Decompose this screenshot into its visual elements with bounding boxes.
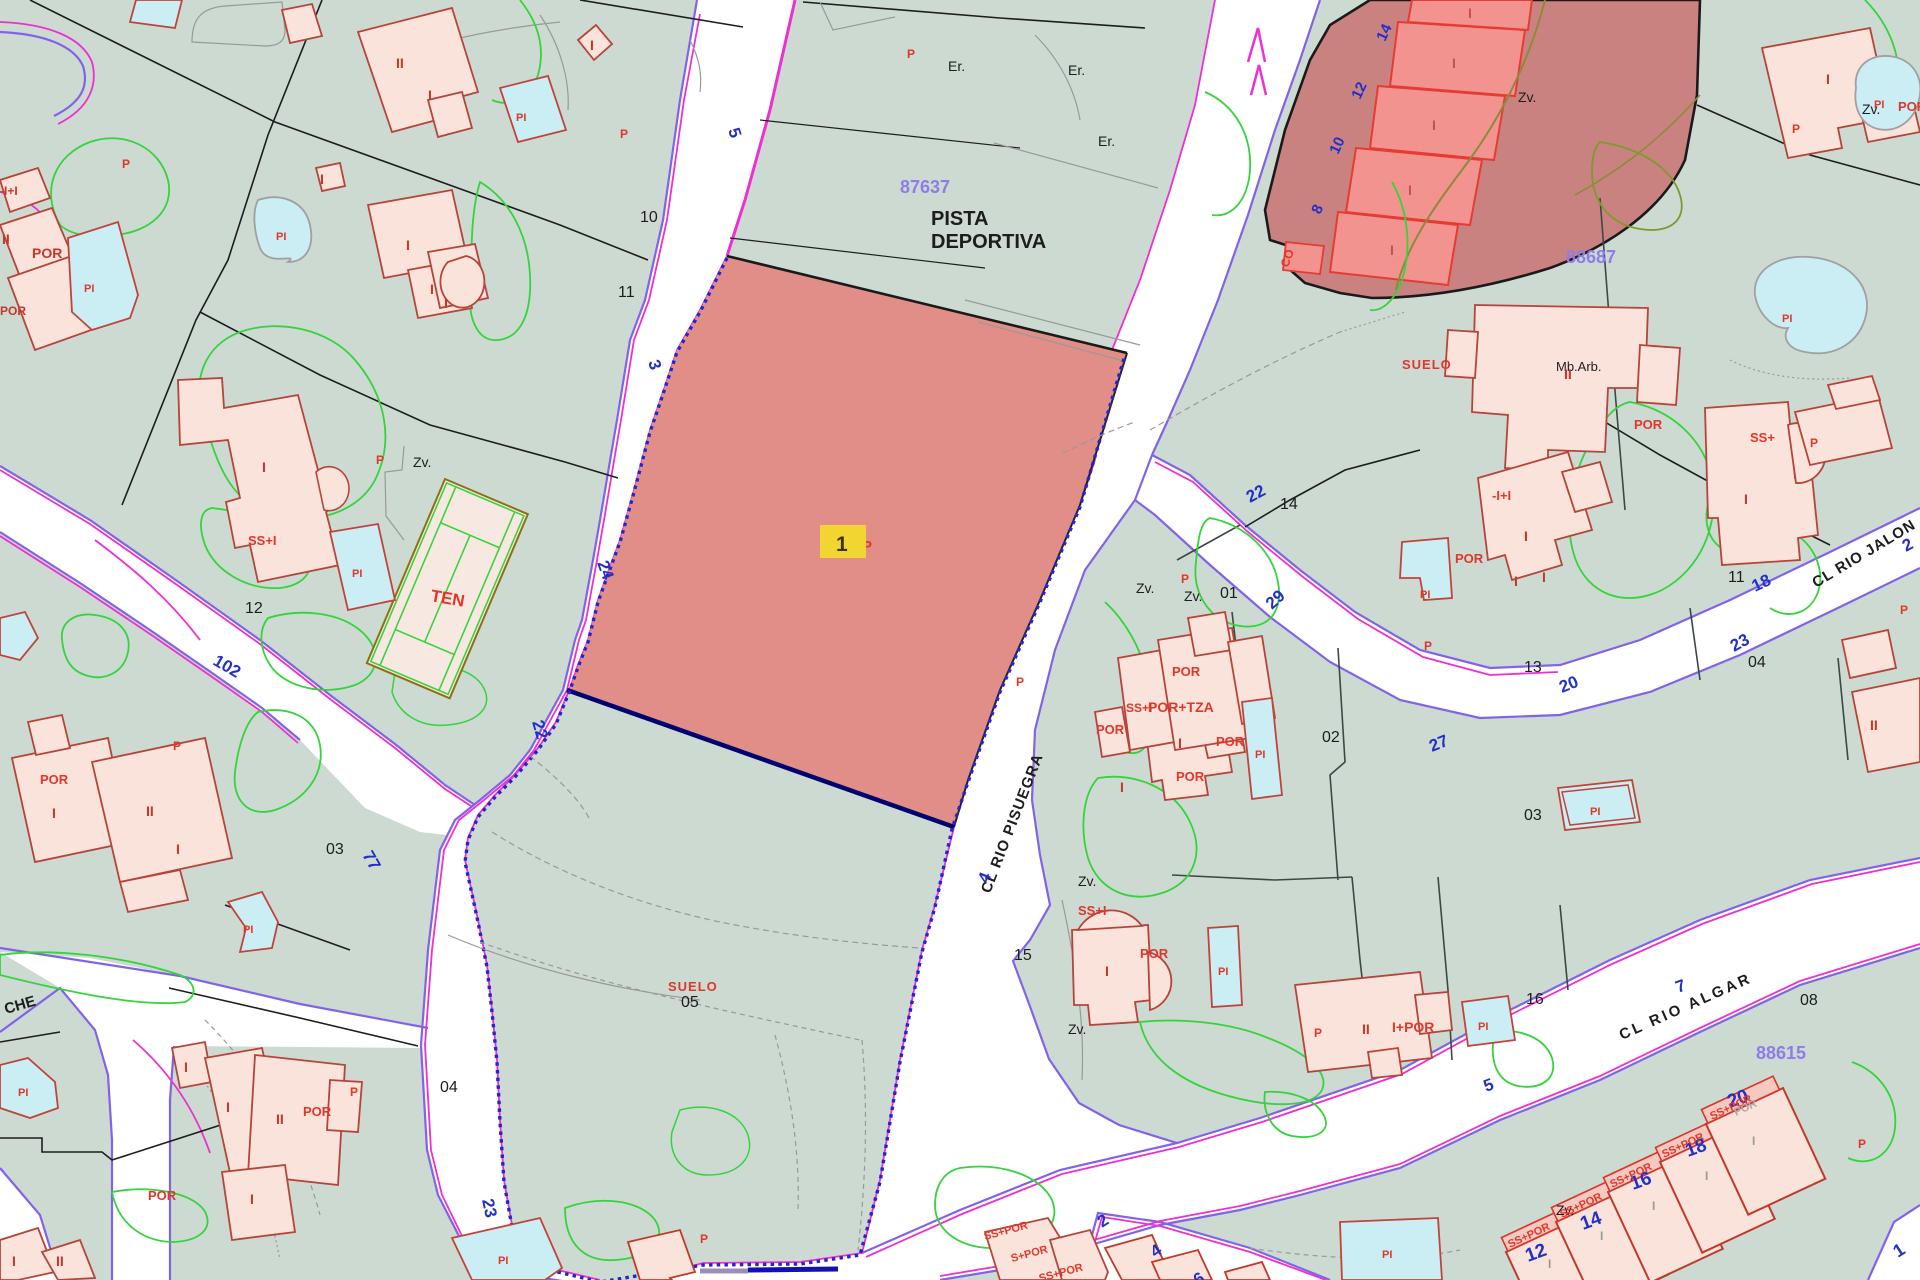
svg-text:Er.: Er. xyxy=(1098,133,1115,149)
svg-text:PI: PI xyxy=(352,568,362,580)
svg-text:01: 01 xyxy=(1220,585,1238,602)
svg-text:Zv.: Zv. xyxy=(1518,89,1536,105)
svg-text:POR: POR xyxy=(1140,946,1169,961)
svg-text:I: I xyxy=(1452,55,1456,71)
svg-text:I: I xyxy=(262,459,266,475)
svg-text:P: P xyxy=(1858,1137,1866,1151)
svg-text:Er.: Er. xyxy=(1068,62,1085,78)
svg-text:I: I xyxy=(1408,182,1412,198)
svg-text:I: I xyxy=(226,1099,230,1115)
svg-text:POR: POR xyxy=(1898,99,1920,114)
svg-text:I+POR: I+POR xyxy=(1392,1019,1434,1035)
svg-text:POR+TZA: POR+TZA xyxy=(1148,699,1214,715)
svg-text:I: I xyxy=(428,87,432,103)
svg-text:I: I xyxy=(1514,573,1518,589)
svg-text:PI: PI xyxy=(516,112,526,124)
svg-text:-I+I: -I+I xyxy=(0,184,18,198)
svg-text:11: 11 xyxy=(1728,569,1745,586)
svg-text:SUELO: SUELO xyxy=(668,979,718,994)
svg-text:DEPORTIVA: DEPORTIVA xyxy=(931,231,1046,253)
svg-text:P: P xyxy=(620,127,628,141)
svg-text:Mb.Arb.: Mb.Arb. xyxy=(1556,359,1602,374)
svg-text:POR: POR xyxy=(1455,551,1484,566)
svg-text:POR: POR xyxy=(1096,722,1125,737)
svg-text:13: 13 xyxy=(1524,659,1542,676)
svg-text:I: I xyxy=(430,281,434,297)
svg-text:POR: POR xyxy=(32,245,62,261)
svg-text:P: P xyxy=(1424,639,1432,653)
svg-text:10: 10 xyxy=(640,209,658,226)
svg-text:88615: 88615 xyxy=(1756,1043,1806,1063)
svg-text:08: 08 xyxy=(1800,992,1818,1009)
svg-text:I: I xyxy=(320,171,324,187)
svg-text:SS+I: SS+I xyxy=(1078,903,1107,918)
svg-text:I: I xyxy=(184,1059,188,1075)
svg-text:I: I xyxy=(1120,779,1124,795)
svg-text:P: P xyxy=(1181,572,1189,586)
svg-text:I: I xyxy=(1652,1199,1655,1213)
svg-text:04: 04 xyxy=(440,1079,458,1096)
svg-text:PI: PI xyxy=(84,283,94,295)
svg-text:I: I xyxy=(1524,528,1528,544)
svg-text:I: I xyxy=(12,1253,16,1269)
svg-text:PI: PI xyxy=(1874,99,1884,111)
svg-text:POR: POR xyxy=(40,772,69,787)
svg-text:03: 03 xyxy=(326,841,344,858)
svg-text:87637: 87637 xyxy=(900,177,950,197)
svg-text:II: II xyxy=(56,1253,64,1269)
svg-text:I: I xyxy=(1705,1169,1708,1183)
svg-text:1: 1 xyxy=(836,533,848,556)
svg-text:PI: PI xyxy=(1782,313,1792,325)
svg-text:Zv.: Zv. xyxy=(1184,588,1202,604)
svg-text:PI: PI xyxy=(1590,806,1600,818)
svg-text:PI: PI xyxy=(243,924,253,936)
svg-text:POR: POR xyxy=(1634,417,1663,432)
svg-text:Er.: Er. xyxy=(948,58,965,74)
svg-text:SS+I: SS+I xyxy=(1126,701,1152,715)
svg-text:II: II xyxy=(1564,366,1572,382)
svg-text:I: I xyxy=(1744,491,1748,507)
svg-text:03: 03 xyxy=(1524,807,1542,824)
svg-text:II: II xyxy=(1362,1021,1370,1037)
svg-text:P: P xyxy=(1792,122,1800,136)
svg-text:II: II xyxy=(1870,717,1878,733)
svg-text:POR: POR xyxy=(1176,769,1205,784)
svg-text:P: P xyxy=(350,1085,358,1099)
svg-text:I: I xyxy=(1826,71,1830,87)
svg-text:I: I xyxy=(1390,242,1394,258)
svg-text:04: 04 xyxy=(1748,654,1766,671)
svg-text:Zv.: Zv. xyxy=(1068,1021,1086,1037)
svg-text:P: P xyxy=(1016,675,1024,689)
svg-text:23: 23 xyxy=(478,1197,501,1219)
svg-text:P: P xyxy=(1810,436,1818,450)
svg-text:P: P xyxy=(1900,603,1908,617)
svg-text:P: P xyxy=(376,453,384,467)
svg-text:PI: PI xyxy=(1478,1021,1488,1033)
svg-text:II: II xyxy=(396,55,404,71)
svg-text:PI: PI xyxy=(1382,1249,1392,1261)
svg-text:05: 05 xyxy=(681,994,699,1011)
svg-text:-I+I: -I+I xyxy=(1492,488,1511,503)
svg-text:12: 12 xyxy=(245,600,263,617)
svg-text:PI: PI xyxy=(1218,966,1228,978)
svg-text:PI: PI xyxy=(498,1255,508,1267)
svg-text:11: 11 xyxy=(618,284,635,301)
svg-text:I: I xyxy=(590,37,594,53)
svg-text:POR: POR xyxy=(148,1188,177,1203)
svg-text:88687: 88687 xyxy=(1566,247,1616,267)
svg-text:P: P xyxy=(1314,1026,1322,1040)
svg-text:I: I xyxy=(1432,117,1436,133)
svg-text:II: II xyxy=(276,1111,284,1127)
svg-text:PI: PI xyxy=(276,231,286,243)
svg-text:II: II xyxy=(146,803,154,819)
svg-text:PI: PI xyxy=(1255,749,1265,761)
svg-text:I: I xyxy=(444,295,448,311)
svg-text:I: I xyxy=(1600,1229,1603,1243)
svg-text:II: II xyxy=(2,231,10,247)
svg-text:PI: PI xyxy=(1420,589,1430,601)
svg-text:POR: POR xyxy=(1216,734,1245,749)
svg-text:I: I xyxy=(406,237,410,253)
svg-text:P: P xyxy=(700,1232,708,1246)
svg-text:I: I xyxy=(1105,963,1109,979)
svg-text:PISTA: PISTA xyxy=(931,208,988,230)
svg-text:POR: POR xyxy=(0,304,26,318)
svg-text:I: I xyxy=(1542,569,1546,585)
svg-text:Zv.: Zv. xyxy=(1136,580,1154,596)
svg-text:I: I xyxy=(52,805,56,821)
svg-text:POR: POR xyxy=(303,1104,332,1119)
svg-text:P: P xyxy=(173,739,181,753)
svg-text:I: I xyxy=(176,841,180,857)
svg-text:I: I xyxy=(1178,735,1182,751)
svg-text:I: I xyxy=(250,1191,254,1207)
svg-text:SS+I: SS+I xyxy=(248,533,277,548)
svg-text:16: 16 xyxy=(1526,991,1544,1008)
svg-text:SUELO: SUELO xyxy=(1402,357,1452,372)
svg-text:02: 02 xyxy=(1322,729,1340,746)
svg-text:Zv.: Zv. xyxy=(413,454,431,470)
svg-text:PI: PI xyxy=(18,1087,28,1099)
svg-text:POR: POR xyxy=(1172,664,1201,679)
svg-text:P: P xyxy=(907,47,915,61)
svg-text:SS+: SS+ xyxy=(1750,430,1775,445)
svg-text:Zv.: Zv. xyxy=(1078,873,1096,889)
svg-text:I: I xyxy=(1468,5,1472,21)
svg-text:14: 14 xyxy=(1280,496,1298,513)
svg-text:I: I xyxy=(1548,1257,1551,1271)
svg-text:15: 15 xyxy=(1014,947,1032,964)
svg-text:I: I xyxy=(1752,1134,1755,1148)
svg-text:P: P xyxy=(122,157,130,171)
